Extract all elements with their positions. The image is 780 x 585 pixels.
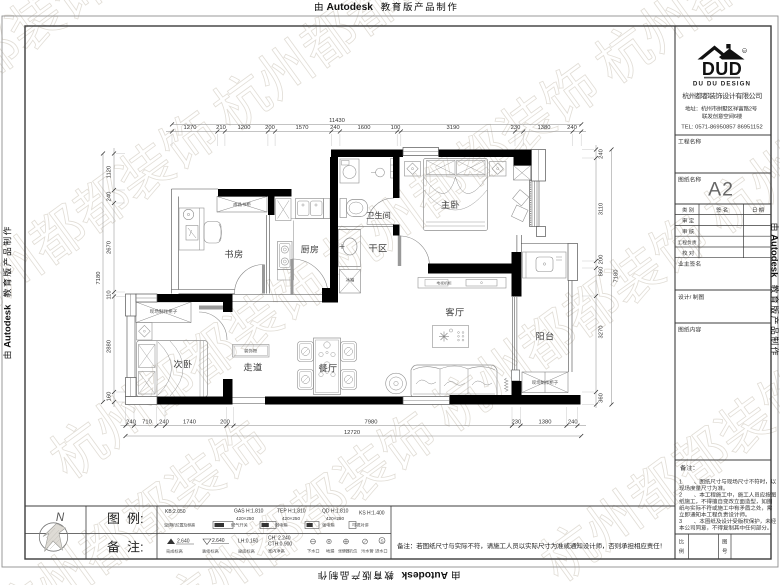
svg-text:240: 240 [568, 419, 578, 425]
svg-text:1740: 1740 [183, 419, 196, 425]
svg-text:Autodesk: Autodesk [769, 234, 780, 278]
svg-text:KB:2.050: KB:2.050 [165, 509, 186, 515]
svg-text:2.640: 2.640 [177, 539, 190, 545]
svg-text:240: 240 [330, 125, 340, 131]
svg-text:1570: 1570 [296, 125, 309, 131]
svg-text:200: 200 [220, 419, 230, 425]
svg-text:2880: 2880 [107, 340, 113, 353]
svg-text:DU DU DESIGN: DU DU DESIGN [693, 81, 751, 88]
svg-text:A2: A2 [708, 179, 734, 201]
svg-text:3270: 3270 [599, 326, 605, 339]
svg-text:LH:0.150: LH:0.150 [238, 539, 259, 545]
svg-text:100: 100 [391, 125, 401, 131]
svg-text:240: 240 [599, 149, 605, 159]
svg-text:240: 240 [126, 419, 136, 425]
svg-text:2670: 2670 [107, 241, 113, 254]
svg-text:7980: 7980 [365, 419, 378, 425]
svg-text:7180: 7180 [614, 270, 620, 283]
svg-text:6: 6 [734, 114, 737, 120]
svg-text:Autodesk: Autodesk [3, 304, 14, 348]
svg-text:CTH:0.900: CTH:0.900 [268, 542, 292, 548]
svg-text:1380: 1380 [538, 125, 551, 131]
svg-text:360: 360 [599, 393, 605, 403]
svg-text:Autodesk: Autodesk [327, 2, 374, 13]
svg-text:11430: 11430 [329, 118, 345, 124]
svg-text:110: 110 [107, 290, 113, 299]
svg-text:R: R [743, 49, 746, 53]
svg-text:GAS H:1.810: GAS H:1.810 [234, 509, 264, 515]
svg-text:12720: 12720 [344, 430, 360, 436]
svg-text:230: 230 [511, 125, 521, 131]
svg-text:230: 230 [512, 419, 522, 425]
svg-text:420×250: 420×250 [326, 516, 344, 521]
svg-text:QD H:1.810: QD H:1.810 [322, 509, 349, 515]
svg-text:160: 160 [107, 392, 113, 402]
svg-text:KS H:1.400: KS H:1.400 [359, 511, 385, 517]
svg-text:3190: 3190 [447, 125, 460, 131]
svg-text:2.640: 2.640 [212, 538, 225, 544]
svg-text:1200: 1200 [238, 125, 251, 131]
svg-text:1600: 1600 [358, 125, 371, 131]
svg-text:200: 200 [599, 255, 605, 265]
svg-text:DUD: DUD [702, 59, 742, 79]
svg-text:1270: 1270 [184, 125, 197, 131]
svg-text:420×250: 420×250 [236, 516, 254, 521]
svg-text:1: 1 [679, 480, 682, 486]
svg-text:240: 240 [107, 192, 113, 202]
svg-text:7180: 7180 [96, 272, 102, 285]
svg-text:1120: 1120 [107, 166, 113, 178]
svg-text::: : [140, 540, 144, 555]
svg-text:240: 240 [567, 125, 577, 131]
svg-text:3110: 3110 [599, 203, 605, 215]
svg-text:2: 2 [749, 107, 752, 113]
svg-text:200: 200 [265, 125, 275, 131]
svg-text:420×250: 420×250 [282, 516, 300, 521]
svg-text:2: 2 [679, 493, 682, 499]
svg-text:1380: 1380 [539, 419, 552, 425]
svg-text:240: 240 [159, 419, 169, 425]
svg-text:710: 710 [142, 419, 152, 425]
svg-text:N: N [56, 512, 65, 524]
svg-text:210: 210 [216, 125, 226, 131]
svg-text:TEL: 0571-86950857 86951152: TEL: 0571-86950857 86951152 [681, 125, 762, 131]
svg-text:860: 860 [599, 267, 605, 277]
svg-text::: : [140, 511, 144, 526]
svg-text:TEP H:1.810: TEP H:1.810 [277, 509, 306, 515]
svg-text:3: 3 [679, 519, 682, 525]
svg-text:Autodesk: Autodesk [401, 569, 448, 580]
svg-text:S: S [380, 539, 383, 544]
